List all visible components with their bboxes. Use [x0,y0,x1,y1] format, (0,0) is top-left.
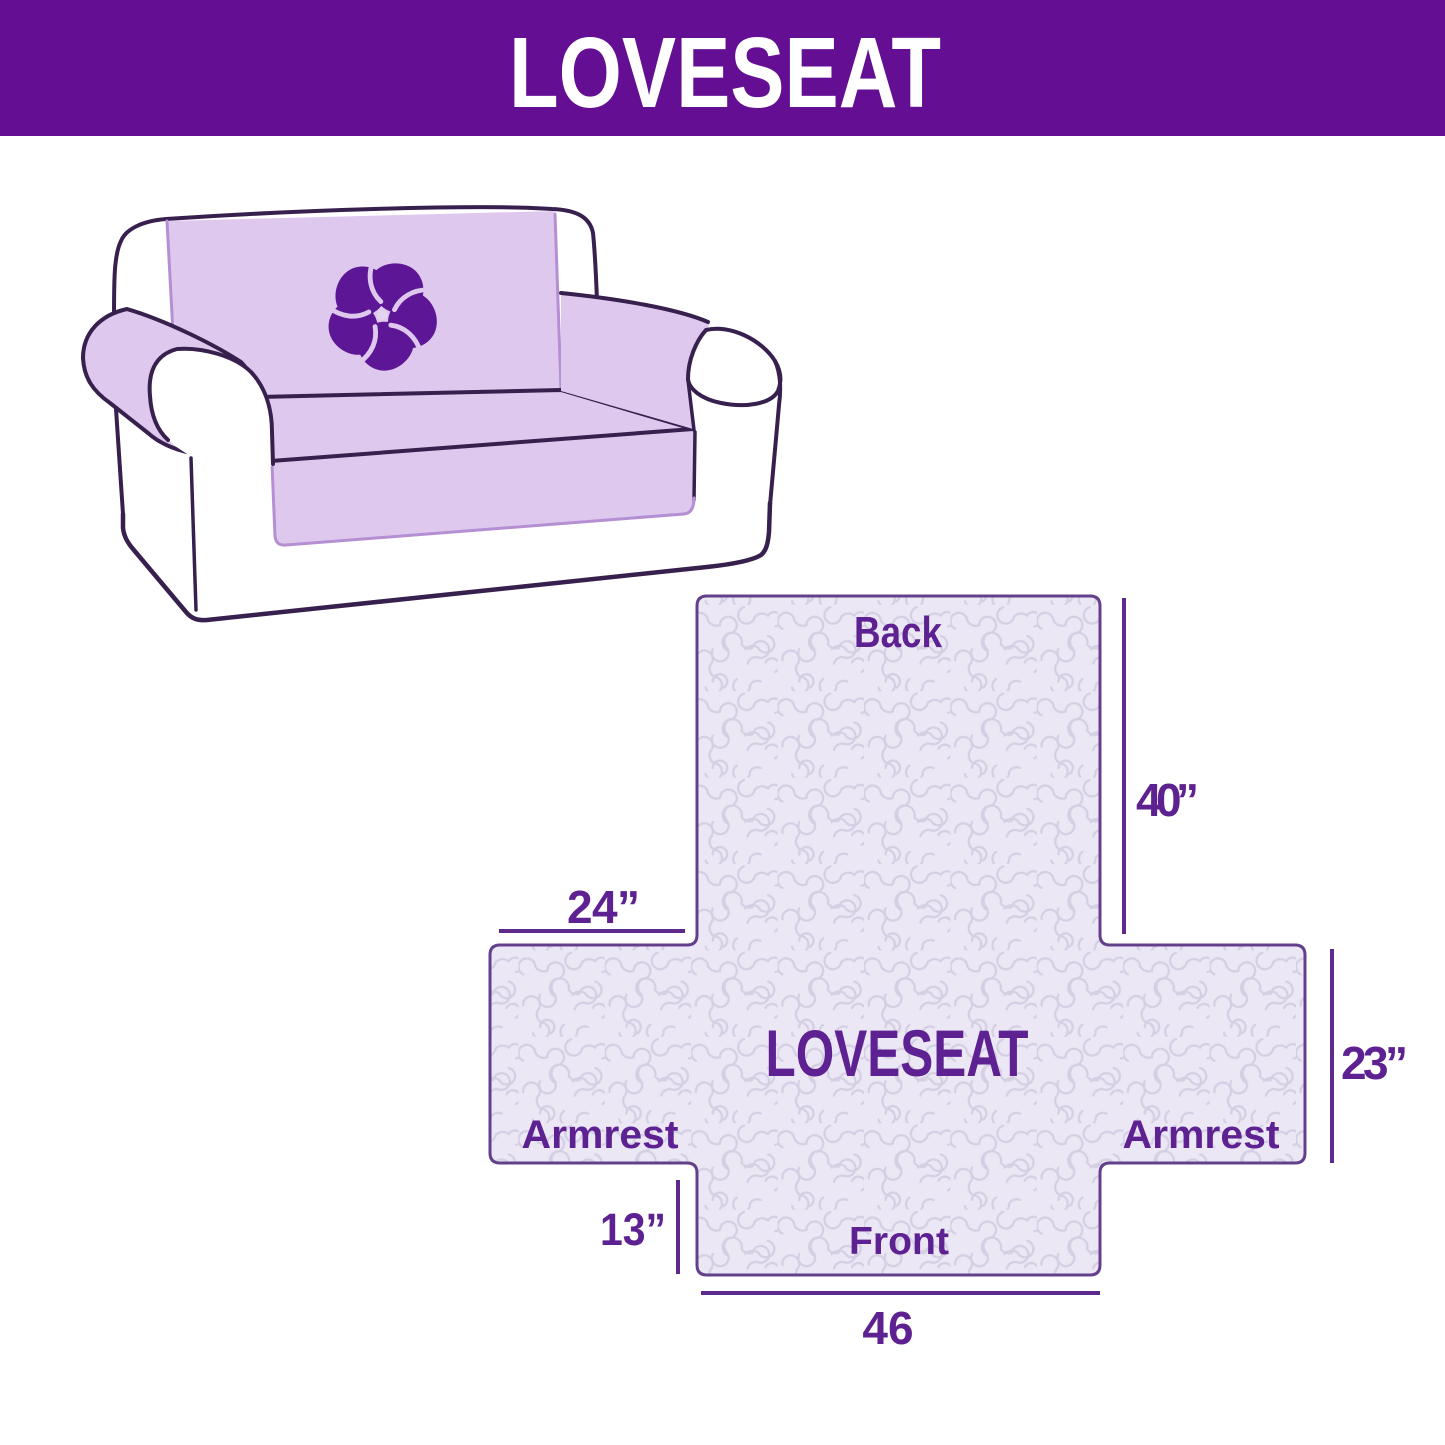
svg-text:LOVESEAT: LOVESEAT [766,1016,1029,1090]
svg-text:23”: 23” [1341,1037,1408,1089]
svg-text:Back: Back [854,608,942,657]
svg-text:13”: 13” [600,1204,666,1255]
svg-text:40”: 40” [1136,774,1199,826]
svg-text:Armrest: Armrest [1123,1113,1280,1157]
svg-text:46: 46 [862,1302,913,1354]
svg-text:Front: Front [849,1220,949,1263]
svg-text:Armrest: Armrest [522,1113,679,1157]
svg-text:LOVESEAT: LOVESEAT [509,17,941,129]
svg-text:24”: 24” [567,881,640,933]
